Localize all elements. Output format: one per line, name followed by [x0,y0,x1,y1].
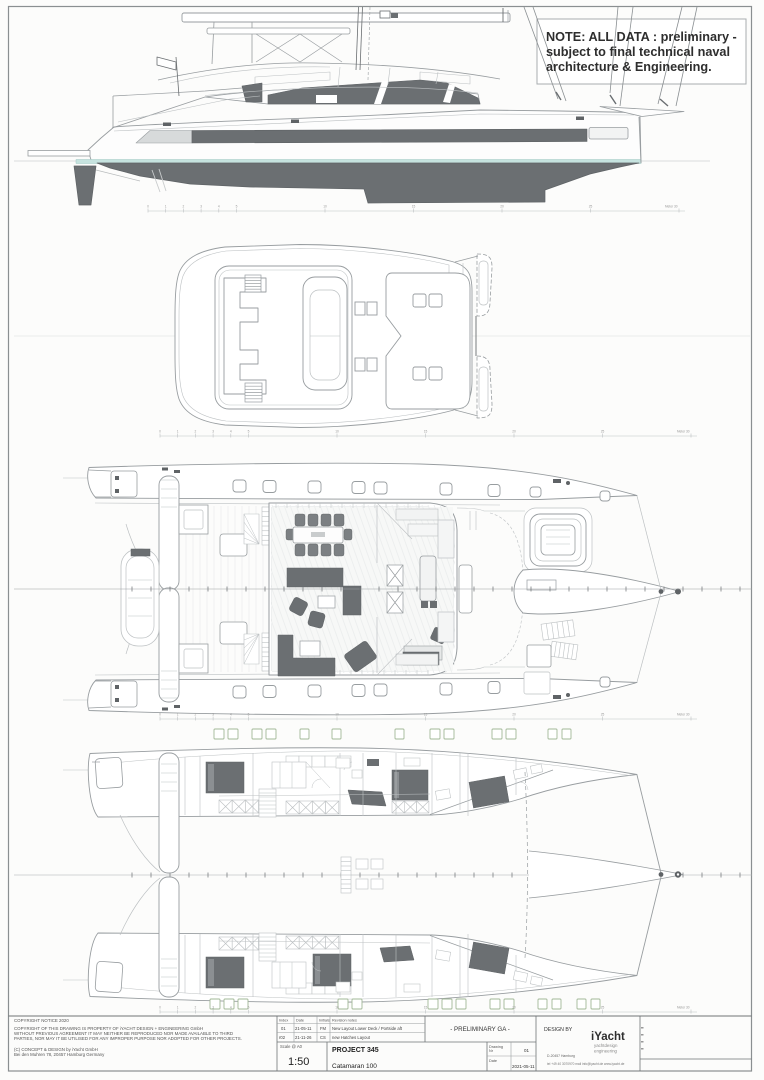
svg-text:2021-05-11: 2021-05-11 [512,1064,535,1069]
svg-text:1: 1 [177,430,179,434]
svg-text:0: 0 [159,1006,161,1010]
svg-text:4: 4 [230,430,232,434]
svg-text:NOTE: ALL DATA : preliminary -: NOTE: ALL DATA : preliminary - [546,30,737,44]
svg-text:20: 20 [512,713,516,717]
svg-text:- PRELIMINARY GA -: - PRELIMINARY GA - [450,1026,510,1033]
svg-text:1: 1 [177,713,179,717]
svg-text:Bei den Muhren 78, 20457 Hamb: Bei den Muhren 78, 20457 Hamburg Germany [14,1052,105,1057]
svg-text:CS: CS [320,1035,326,1040]
svg-text:15: 15 [424,1006,428,1010]
svg-text:PARTIES, NOR MAY IT BE UTILISE: PARTIES, NOR MAY IT BE UTILISED FOR ANY … [14,1036,242,1041]
svg-text:3: 3 [200,205,202,209]
svg-text:25: 25 [589,205,593,209]
svg-text:0: 0 [159,713,161,717]
svg-text:2: 2 [195,713,197,717]
svg-text:Initials: Initials [319,1019,330,1023]
svg-text:10: 10 [323,205,327,209]
svg-text:5: 5 [248,430,250,434]
svg-text:25: 25 [601,1006,605,1010]
svg-text:Meter 30: Meter 30 [677,713,690,717]
svg-text:25: 25 [601,430,605,434]
svg-text:engineering: engineering [594,1049,618,1054]
svg-text:FM: FM [320,1026,327,1031]
svg-text:0: 0 [159,430,161,434]
svg-text:2: 2 [195,1006,197,1010]
svg-text:Meter 30: Meter 30 [677,430,690,434]
svg-text:01: 01 [281,1026,286,1031]
svg-text:10: 10 [335,430,339,434]
svg-text:D-20457 Hamburg: D-20457 Hamburg [547,1054,575,1058]
svg-text:20: 20 [512,1006,516,1010]
svg-text:2: 2 [183,205,185,209]
svg-text:21-05-11: 21-05-11 [295,1026,312,1031]
svg-text:10: 10 [335,1006,339,1010]
svg-text:COPYRIGHT NOTICE 2020: COPYRIGHT NOTICE 2020 [14,1018,69,1023]
svg-text:20: 20 [500,205,504,209]
svg-text:4: 4 [218,205,220,209]
svg-text:5: 5 [248,1006,250,1010]
svg-text:20: 20 [512,430,516,434]
svg-text:PROJECT 345: PROJECT 345 [332,1047,379,1054]
svg-text:1:50: 1:50 [288,1056,309,1068]
svg-text:25: 25 [601,713,605,717]
svg-text:3: 3 [212,1006,214,1010]
svg-text:01: 01 [524,1048,530,1053]
svg-text:DESIGN BY: DESIGN BY [544,1027,573,1033]
svg-text:10: 10 [335,713,339,717]
svg-text:Catamaran 100: Catamaran 100 [332,1063,377,1070]
svg-text:1: 1 [177,1006,179,1010]
svg-text:tel +49 40 3070970 mail info: tel +49 40 3070970 mail info@iyacht.de w… [547,1062,625,1066]
svg-text:Meter 30: Meter 30 [665,205,678,209]
svg-text:architecture & Engineering.: architecture & Engineering. [546,60,712,74]
svg-text:Date: Date [296,1019,304,1023]
svg-text:5: 5 [248,713,250,717]
svg-text:iYacht: iYacht [591,1031,625,1043]
svg-text:3: 3 [212,713,214,717]
svg-text:15: 15 [424,430,428,434]
svg-text:subject to final technical nav: subject to final technical naval [546,45,730,59]
svg-text:yachtdesign: yachtdesign [594,1043,618,1048]
svg-text:4: 4 [230,1006,232,1010]
svg-text:15: 15 [412,205,416,209]
svg-text:0: 0 [147,205,149,209]
svg-text:Index: Index [279,1019,288,1023]
svg-text:1: 1 [165,205,167,209]
svg-text:Scale @ A0: Scale @ A0 [280,1044,303,1049]
svg-text:3: 3 [212,430,214,434]
svg-text:New Layout Lower Deck / Portsi: New Layout Lower Deck / Portside aft [332,1026,403,1031]
svg-text:5: 5 [236,205,238,209]
svg-text:21-11-26: 21-11-26 [295,1035,312,1040]
svg-text:Date: Date [489,1059,497,1063]
svg-text:Meter 30: Meter 30 [677,1006,690,1010]
svg-text:Revision notes: Revision notes [332,1019,357,1023]
svg-text:new Hatches Layout: new Hatches Layout [332,1035,371,1040]
svg-text:15: 15 [424,713,428,717]
svg-text:r02: r02 [279,1035,286,1040]
svg-text:4: 4 [230,713,232,717]
svg-text:2: 2 [195,430,197,434]
